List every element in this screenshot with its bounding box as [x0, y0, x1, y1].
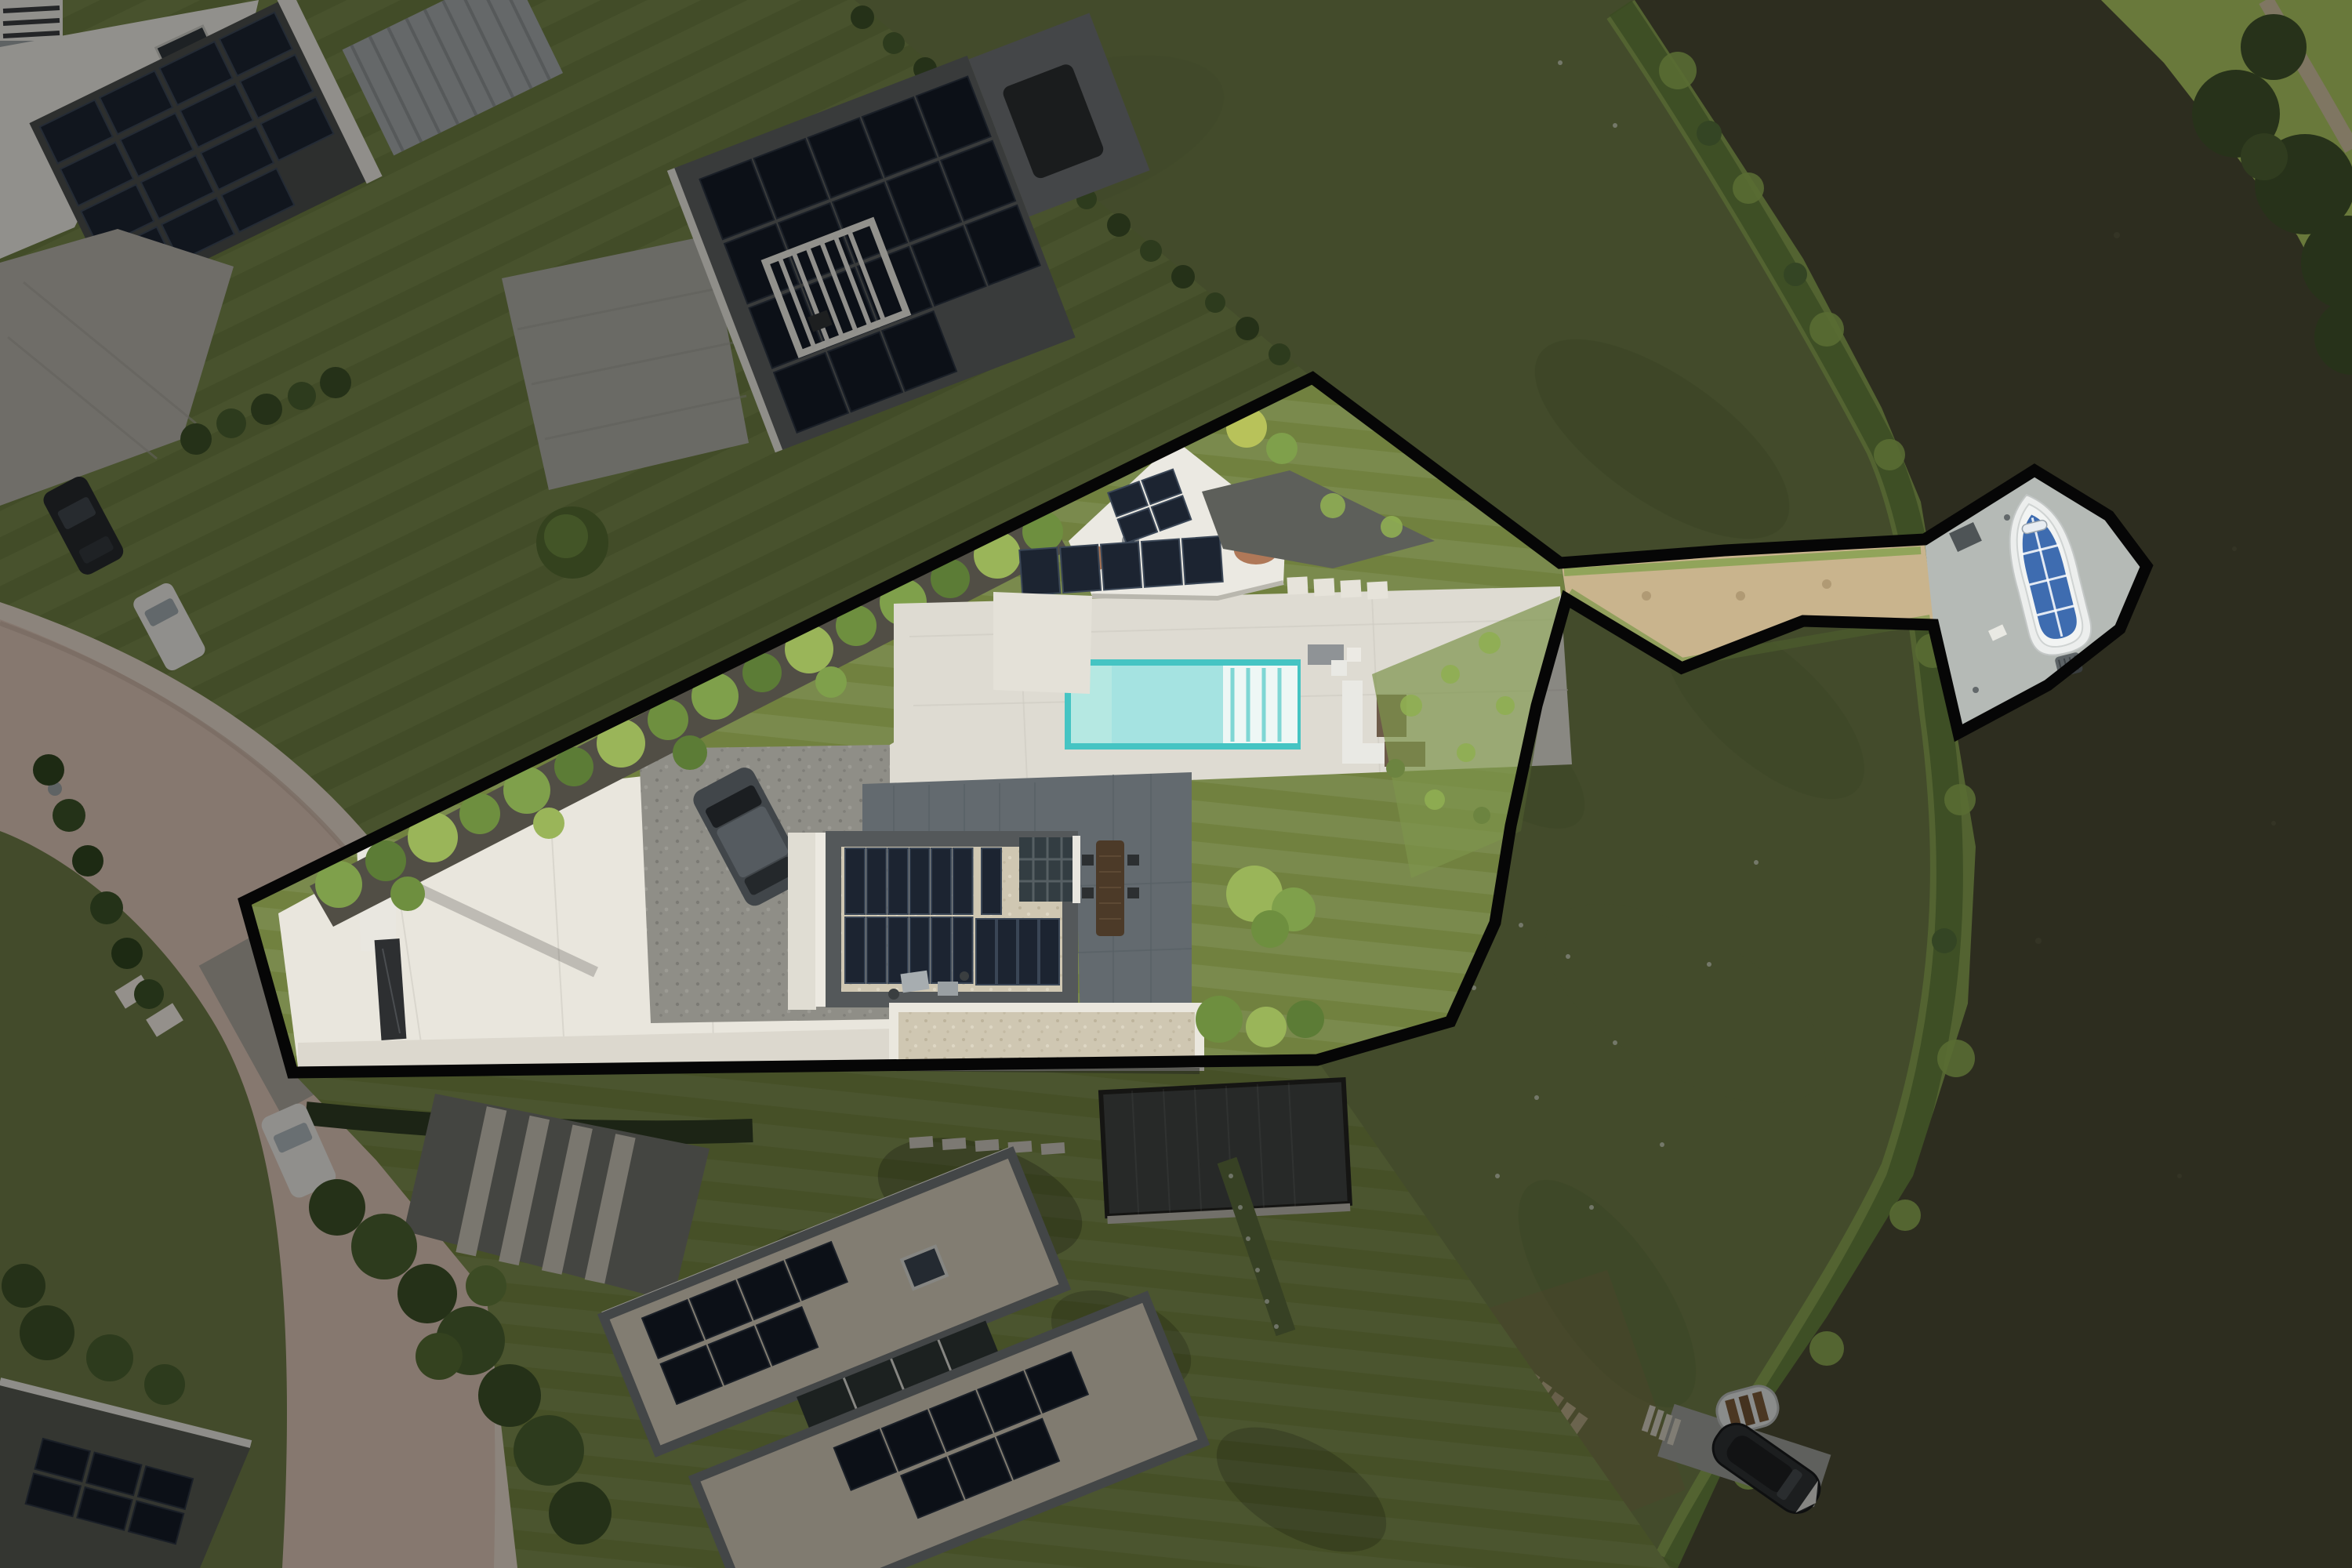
- jetty-corridor-part: [1736, 591, 1745, 601]
- atrium: [1019, 836, 1080, 903]
- shrub-row-part: [815, 666, 847, 698]
- se-garden-part: [1496, 696, 1515, 715]
- chair: [1082, 887, 1094, 898]
- jetty-corridor-part: [1822, 579, 1831, 589]
- guest-solar-row-part: [1182, 536, 1223, 584]
- atrium-part: [1073, 836, 1080, 903]
- chair: [1082, 855, 1094, 866]
- lounge-set-part: [1331, 660, 1347, 676]
- villa-solar-array-part: [931, 848, 951, 914]
- villa-solar-array-part: [910, 848, 930, 914]
- roof-equipment-part: [938, 982, 958, 996]
- se-garden-part: [1457, 743, 1475, 762]
- stepping-stones-part: [1367, 581, 1388, 599]
- roof-equipment-part: [960, 971, 969, 981]
- villa-solar-array-part: [867, 917, 887, 983]
- marked-plot-part: [1320, 493, 1345, 518]
- sofa: [1342, 681, 1363, 746]
- se-garden-part: [1386, 759, 1405, 778]
- villa-solar-array-part: [953, 848, 973, 914]
- villa-solar-array-part: [888, 848, 908, 914]
- villa-solar-array-part: [997, 919, 1017, 985]
- villa-solar-array-part: [845, 848, 865, 914]
- jetty-corridor-part: [1642, 591, 1651, 601]
- villa-solar-array-part: [976, 919, 996, 985]
- jetty-part: [2004, 514, 2010, 521]
- villa-solar-array-part: [1018, 919, 1038, 985]
- guest-solar-row-part: [1060, 545, 1101, 593]
- aerial-photo-stage: [0, 0, 2352, 1568]
- se-garden-part: [1425, 789, 1445, 810]
- roof-equipment-part: [888, 989, 899, 1000]
- villa-solar-array-part: [931, 917, 951, 983]
- villa-solar-array-part: [982, 848, 1001, 914]
- chair: [1127, 887, 1139, 898]
- roof-equipment-part: [900, 971, 929, 993]
- shrub-row-part: [533, 808, 564, 839]
- villa-solar-array-part: [1040, 919, 1059, 985]
- chair: [1127, 855, 1139, 866]
- se-garden-part: [1473, 807, 1490, 824]
- se-garden-part: [1479, 632, 1501, 654]
- shrub-row-part: [673, 735, 707, 770]
- villa-solar-array-part: [888, 917, 908, 983]
- swimming-pool: [1068, 662, 1298, 746]
- wing-bushes-part: [1196, 996, 1243, 1043]
- wing-bushes-part: [1246, 1007, 1287, 1047]
- jetty-part: [1973, 687, 1979, 693]
- wing-bushes-part: [1287, 1000, 1324, 1038]
- atrium-part: [1019, 837, 1073, 902]
- guest-solar-row-part: [1142, 539, 1182, 587]
- marked-plot-part: [1381, 516, 1403, 538]
- west-walk: [788, 833, 816, 1010]
- villa-solar-array-part: [867, 848, 887, 914]
- aerial-photo: [0, 0, 2352, 1568]
- villa-solar-array-part: [845, 917, 865, 983]
- shrub-row-part: [390, 877, 425, 911]
- guest-solar-row-part: [1101, 542, 1142, 590]
- se-garden-part: [1441, 665, 1460, 684]
- stepping-stones-part: [1340, 579, 1361, 597]
- stepping-stones-part: [1287, 576, 1308, 594]
- guest-pad: [993, 592, 1092, 694]
- marked-plot-part: [1266, 433, 1298, 464]
- villa-roof-part: [815, 833, 826, 1007]
- lounge-set-part: [1347, 648, 1361, 662]
- shrub-row-part: [365, 840, 406, 881]
- se-garden-part: [1251, 910, 1289, 948]
- stepping-stones-part: [1313, 578, 1334, 596]
- se-garden-part: [1400, 695, 1422, 717]
- guest-solar-row-part: [1019, 547, 1060, 595]
